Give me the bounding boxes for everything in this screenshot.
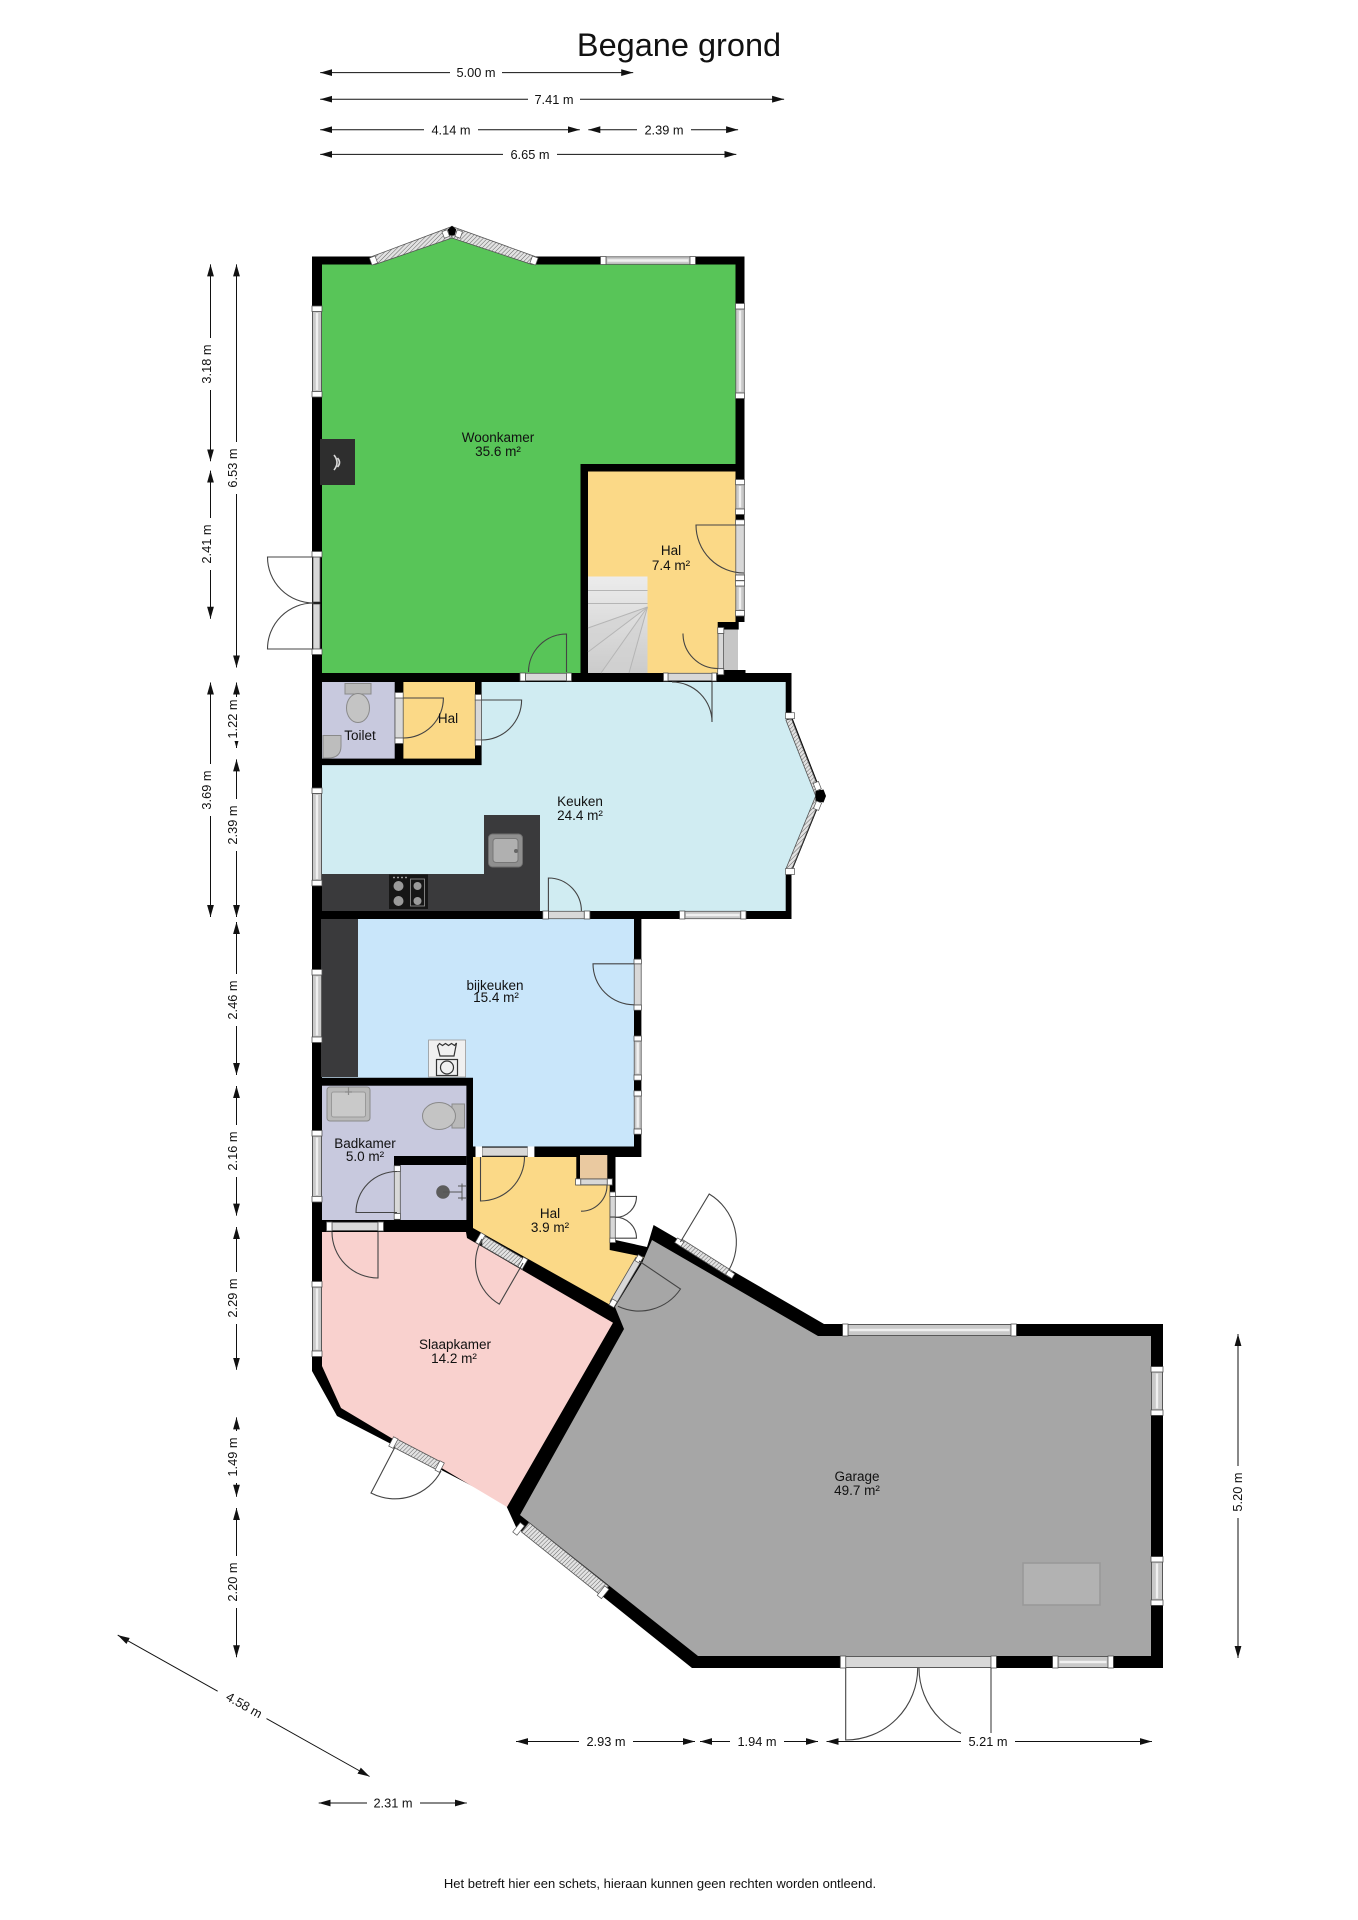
- svg-text:6.65 m: 6.65 m: [510, 147, 549, 162]
- svg-text:2.31 m: 2.31 m: [373, 1796, 412, 1811]
- svg-text:Slaapkamer: Slaapkamer: [419, 1337, 492, 1352]
- svg-text:2.39 m: 2.39 m: [644, 122, 683, 137]
- svg-text:3.9 m²: 3.9 m²: [531, 1220, 570, 1235]
- svg-text:5.0 m²: 5.0 m²: [346, 1149, 385, 1164]
- svg-text:Toilet: Toilet: [344, 728, 376, 743]
- svg-text:49.7 m²: 49.7 m²: [834, 1483, 880, 1498]
- svg-text:7.41 m: 7.41 m: [534, 92, 573, 107]
- svg-text:2.20 m: 2.20 m: [225, 1562, 240, 1601]
- svg-text:1.49 m: 1.49 m: [225, 1437, 240, 1476]
- svg-text:Hal: Hal: [661, 543, 681, 558]
- svg-text:Keuken: Keuken: [557, 794, 603, 809]
- svg-text:Woonkamer: Woonkamer: [462, 430, 535, 445]
- svg-text:24.4 m²: 24.4 m²: [557, 808, 603, 823]
- svg-text:Het betreft hier een schets, h: Het betreft hier een schets, hieraan kun…: [444, 1876, 876, 1891]
- svg-text:2.29 m: 2.29 m: [225, 1278, 240, 1317]
- svg-text:2.93 m: 2.93 m: [586, 1734, 625, 1749]
- svg-text:2.41 m: 2.41 m: [199, 524, 214, 563]
- svg-text:Garage: Garage: [834, 1469, 879, 1484]
- svg-text:14.2 m²: 14.2 m²: [431, 1351, 477, 1366]
- svg-text:Begane grond: Begane grond: [577, 27, 781, 63]
- svg-text:7.4 m²: 7.4 m²: [652, 558, 691, 573]
- svg-text:2.46 m: 2.46 m: [225, 980, 240, 1019]
- svg-text:2.16 m: 2.16 m: [225, 1131, 240, 1170]
- svg-text:1.22 m: 1.22 m: [225, 699, 240, 738]
- svg-text:3.18 m: 3.18 m: [199, 344, 214, 383]
- svg-text:3.69 m: 3.69 m: [199, 770, 214, 809]
- svg-text:5.21 m: 5.21 m: [968, 1734, 1007, 1749]
- svg-text:4.14 m: 4.14 m: [431, 122, 470, 137]
- svg-text:6.53 m: 6.53 m: [225, 448, 240, 487]
- svg-text:5.00 m: 5.00 m: [456, 65, 495, 80]
- svg-text:15.4 m²: 15.4 m²: [473, 990, 519, 1005]
- svg-text:2.39 m: 2.39 m: [225, 805, 240, 844]
- svg-text:35.6 m²: 35.6 m²: [475, 444, 521, 459]
- svg-text:Hal: Hal: [540, 1206, 560, 1221]
- svg-text:Hal: Hal: [438, 711, 458, 726]
- svg-text:1.94 m: 1.94 m: [737, 1734, 776, 1749]
- svg-text:5.20 m: 5.20 m: [1230, 1472, 1245, 1511]
